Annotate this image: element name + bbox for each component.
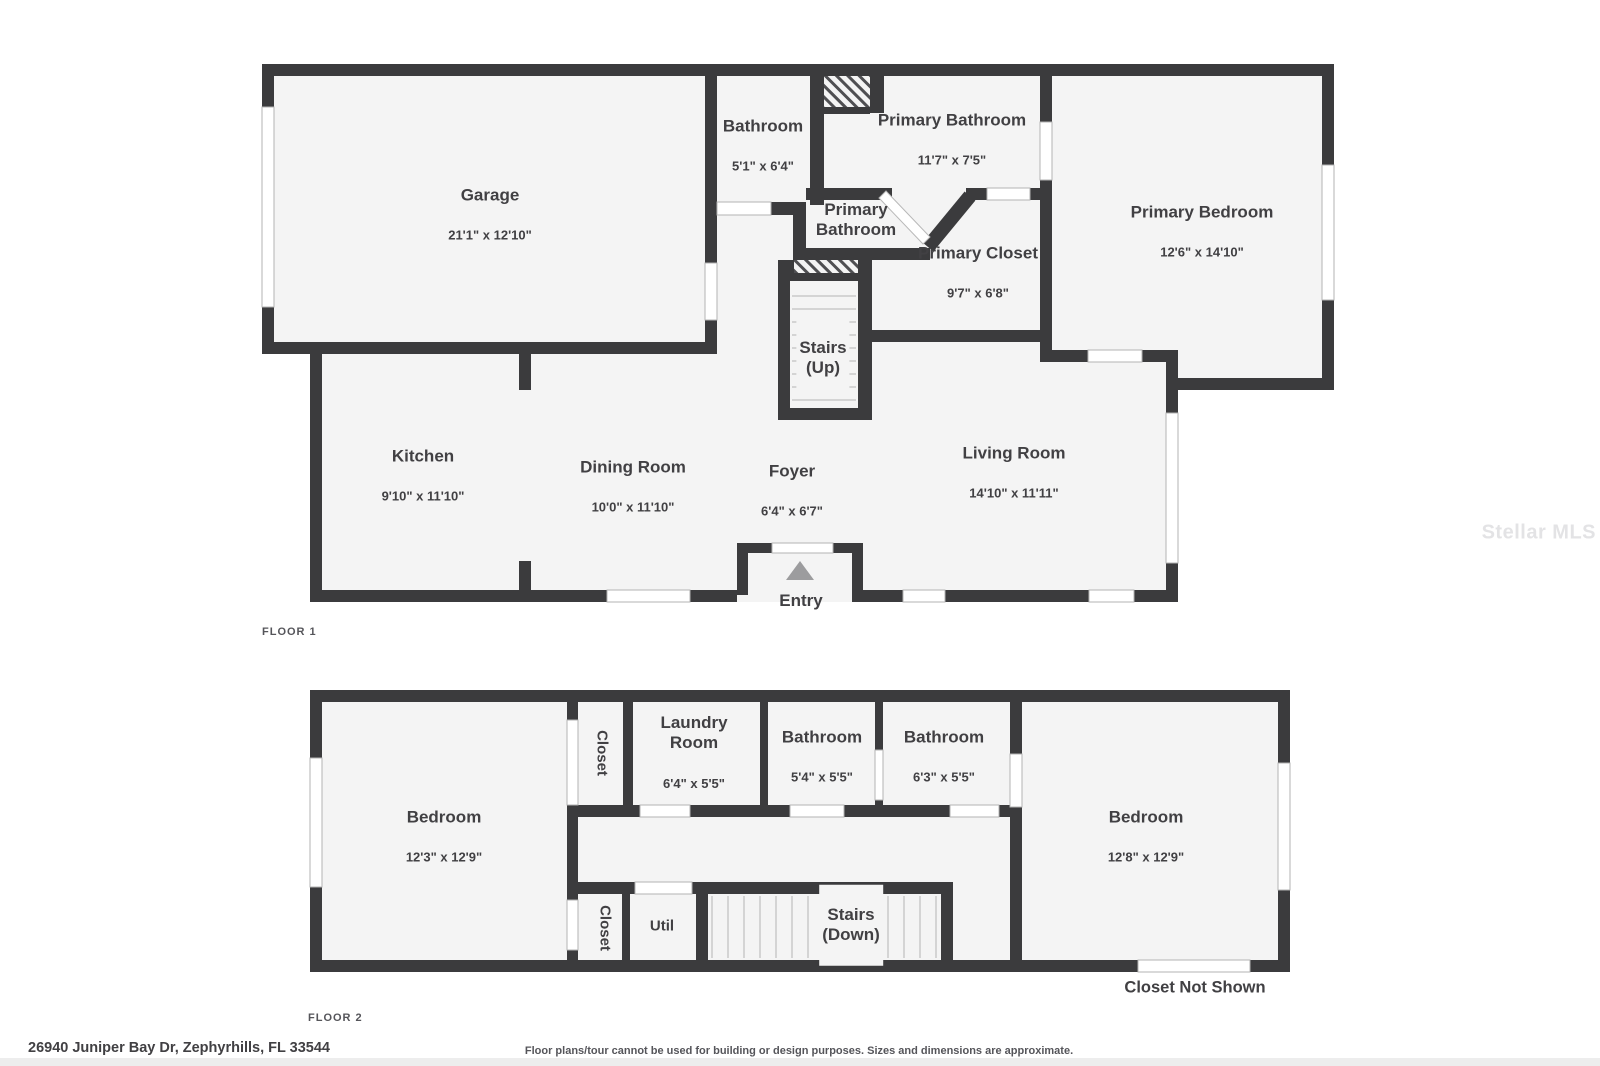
room-label-primary-closet: Primary Closet 9'7" x 6'8" bbox=[918, 223, 1038, 320]
bottom-bar bbox=[0, 1058, 1600, 1066]
entry-label: Entry bbox=[779, 571, 822, 631]
room-label-primary-bathroom-small: Primary Bathroom bbox=[816, 180, 896, 261]
room-label-stairs-down: Stairs (Down) bbox=[819, 885, 883, 966]
room-label-primary-bathroom: Primary Bathroom 11'7" x 7'5" bbox=[878, 90, 1026, 187]
room-label-bathroom-f1: Bathroom 5'1" x 6'4" bbox=[723, 96, 803, 193]
property-address: 26940 Juniper Bay Dr, Zephyrhills, FL 33… bbox=[28, 1040, 330, 1056]
room-label-bathroom-2: Bathroom 6'3" x 5'5" bbox=[904, 707, 984, 804]
room-label-primary-bedroom: Primary Bedroom 12'6" x 14'10" bbox=[1131, 182, 1274, 279]
room-label-stairs-up: Stairs (Up) bbox=[796, 318, 849, 399]
disclaimer-text: Floor plans/tour cannot be used for buil… bbox=[525, 1045, 1073, 1057]
room-label-bathroom-1: Bathroom 5'4" x 5'5" bbox=[782, 707, 862, 804]
room-label-kitchen: Kitchen 9'10" x 11'10" bbox=[382, 426, 465, 523]
stellar-mls-watermark: Stellar MLS bbox=[1482, 522, 1596, 545]
closet-not-shown-note: Closet Not Shown bbox=[1124, 957, 1265, 1016]
room-label-util: Util bbox=[650, 897, 674, 954]
room-label-closet-bottom: Closet bbox=[576, 905, 633, 951]
floor-plan-page: Garage 21'1" x 12'10" Bathroom 5'1" x 6'… bbox=[0, 0, 1600, 1066]
room-label-laundry-room: Laundry Room 6'4" x 5'5" bbox=[660, 693, 727, 811]
room-label-bedroom-right: Bedroom 12'8" x 12'9" bbox=[1108, 787, 1184, 884]
room-label-bedroom-left: Bedroom 12'3" x 12'9" bbox=[406, 787, 482, 884]
room-label-foyer: Foyer 6'4" x 6'7" bbox=[761, 441, 823, 538]
room-label-garage: Garage 21'1" x 12'10" bbox=[448, 165, 532, 262]
room-label-living-room: Living Room 14'10" x 11'11" bbox=[963, 423, 1066, 520]
room-label-dining-room: Dining Room 10'0" x 11'10" bbox=[580, 437, 686, 534]
floor2-label: FLOOR 2 bbox=[308, 1012, 363, 1024]
floor1-label: FLOOR 1 bbox=[262, 626, 317, 638]
room-label-closet-top: Closet bbox=[573, 730, 630, 776]
